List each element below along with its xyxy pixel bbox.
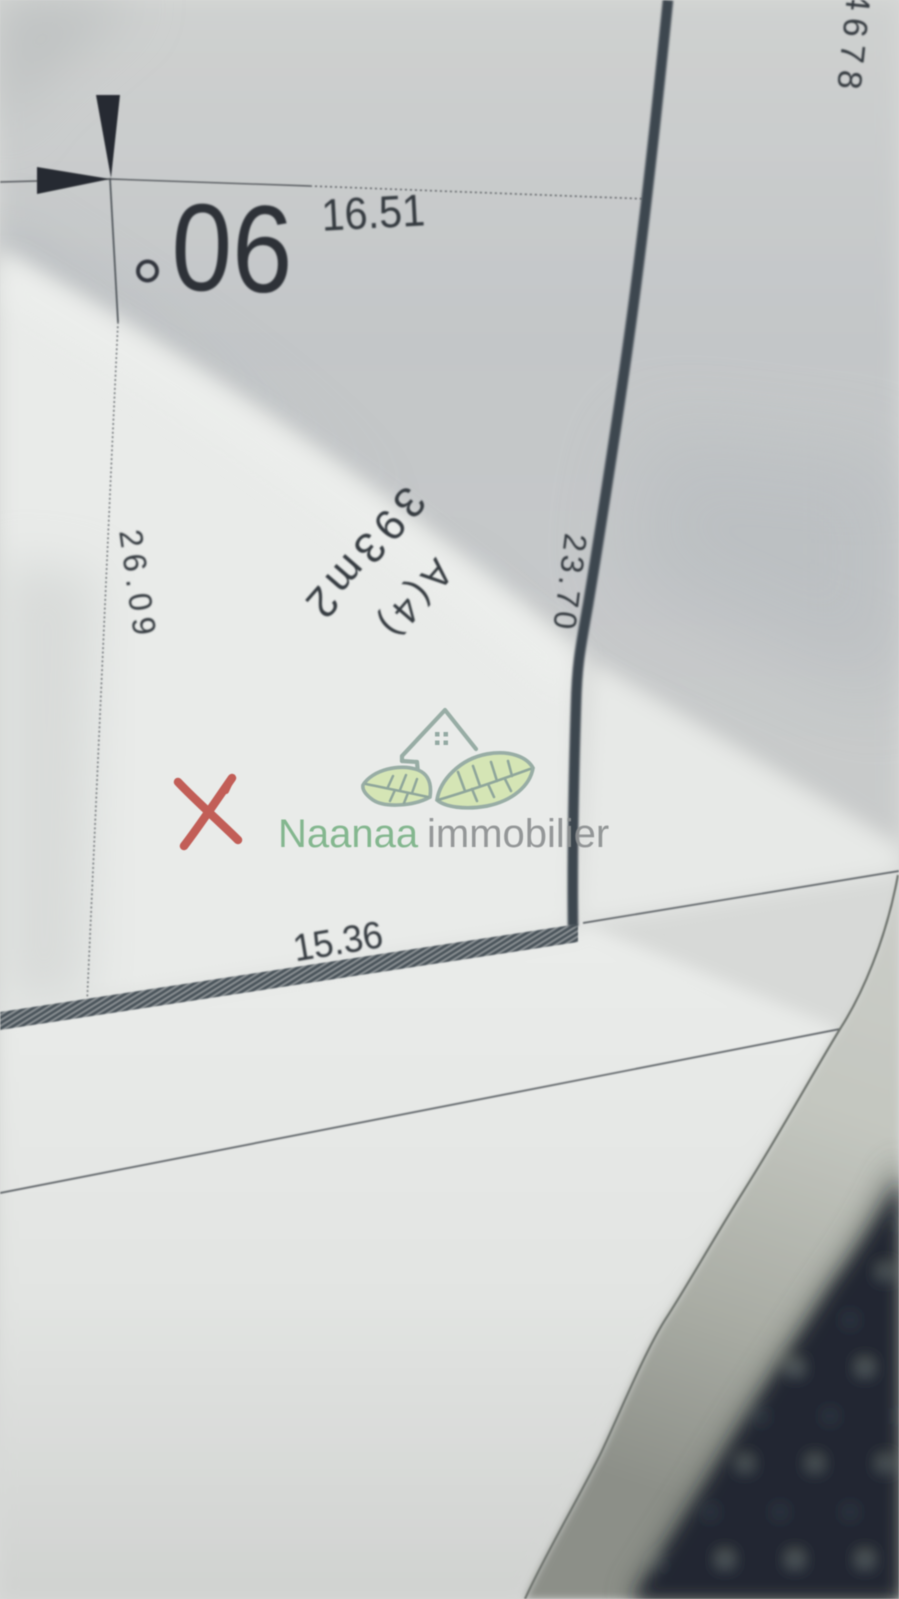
svg-text:Naanaa: Naanaa: [278, 812, 419, 856]
svg-text:immobilier: immobilier: [427, 812, 609, 856]
svg-text:16.51: 16.51: [320, 186, 426, 241]
svg-text:06: 06: [170, 177, 295, 319]
